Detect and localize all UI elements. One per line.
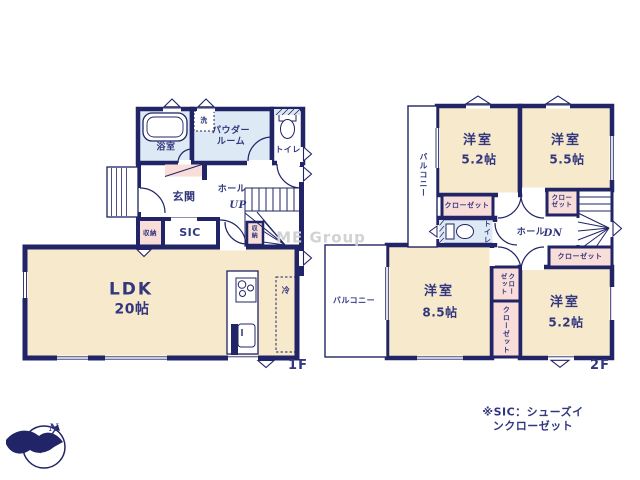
room-85: [387, 245, 492, 358]
label-floor-1f: 1F: [288, 358, 308, 374]
floor1-plan: [23, 99, 312, 368]
room-52b: [520, 267, 612, 358]
label-floor-2f: 2F: [590, 358, 610, 374]
compass-north-label: N: [49, 423, 59, 436]
label-stairs-dn: DN: [544, 228, 563, 241]
label-balcony-lower: バルコニー: [333, 296, 375, 306]
label-closet-d: クロー ゼット: [498, 273, 514, 296]
label-ldk-name: LDK: [109, 279, 153, 300]
label-fridge: 冷: [282, 286, 291, 296]
toilet-fixture-1f: [279, 112, 296, 139]
label-closet-a: クローゼット: [445, 202, 490, 211]
label-bath: 浴室: [156, 142, 175, 153]
label-washer: 洗: [200, 117, 208, 126]
label-room-52b-name: 洋室: [550, 295, 580, 311]
label-room-52a-size: 5.2帖: [461, 153, 496, 168]
bathtub: [143, 113, 187, 141]
label-balcony-upper: バルコニー: [418, 153, 428, 198]
label-storage-stairs: 収 納: [252, 226, 259, 239]
label-toilet-2f: トイレ: [483, 220, 492, 244]
label-closet-c: クローゼット: [558, 253, 603, 262]
label-room-55-name: 洋室: [551, 133, 581, 149]
room-52a: [437, 106, 520, 195]
label-entrance: 玄関: [173, 190, 196, 204]
label-room-52a-name: 洋室: [463, 133, 493, 149]
label-closet-b: クロー ゼット: [552, 195, 573, 210]
label-room-55-size: 5.5帖: [549, 153, 584, 168]
label-room-52b-size: 5.2帖: [548, 316, 583, 331]
label-toilet-1f: トイレ: [275, 145, 301, 155]
kitchen-counter: [227, 271, 258, 355]
label-sic: SIC: [179, 226, 201, 240]
toilet-window-hatch-1f: [274, 109, 300, 115]
label-stairs-up: UP: [229, 200, 246, 213]
label-powder-room: パウダー ルーム: [212, 126, 250, 149]
label-storage-left: 収納: [143, 229, 157, 237]
label-room-85-size: 8.5帖: [422, 306, 457, 321]
label-hall-1f: ホール: [218, 184, 247, 195]
entry-step: [165, 165, 202, 177]
watermark: ME Group: [276, 229, 366, 248]
floorplan-canvas: 浴室 洗 パウダー ルーム トイレ 玄関 ホール UP 収納 SIC 収 納 L…: [0, 0, 640, 480]
label-closet-e: クローゼット: [502, 306, 511, 354]
label-ldk-size: 20帖: [115, 301, 150, 319]
label-hall-2f: ホール: [517, 227, 546, 238]
porch: [107, 167, 138, 217]
label-room-85-name: 洋室: [424, 284, 454, 300]
sic-note: ※SIC：シューズインクローゼット: [480, 405, 587, 433]
